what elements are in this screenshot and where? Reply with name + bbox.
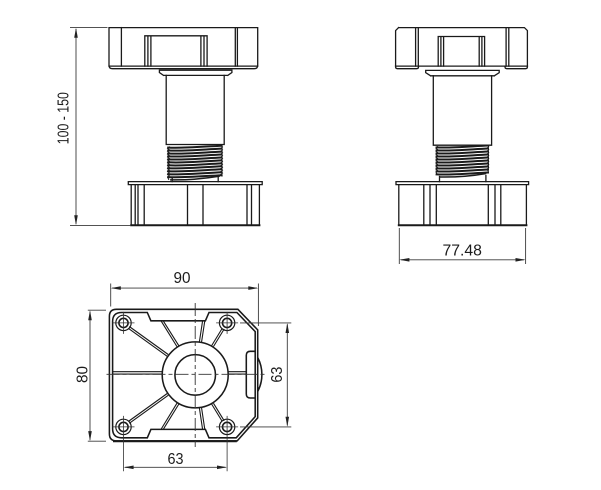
svg-text:77.48: 77.48 xyxy=(442,242,482,259)
svg-text:100 - 150: 100 - 150 xyxy=(55,92,72,144)
svg-text:63: 63 xyxy=(168,451,184,468)
svg-text:90: 90 xyxy=(174,270,191,287)
svg-text:80: 80 xyxy=(75,366,92,383)
svg-text:63: 63 xyxy=(269,367,286,383)
